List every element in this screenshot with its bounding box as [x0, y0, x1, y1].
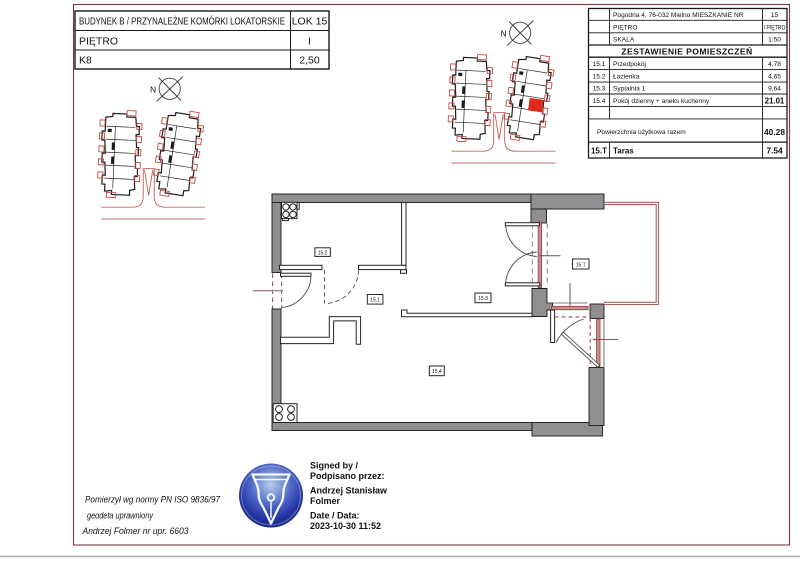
svg-text:PIĘTRO: PIĘTRO [613, 24, 638, 31]
svg-text:40.28: 40.28 [764, 127, 785, 137]
svg-text:LOK 15: LOK 15 [292, 16, 328, 28]
svg-text:K8: K8 [79, 55, 92, 67]
svg-text:Pomierzył wg normy PN ISO 983: Pomierzył wg normy PN ISO 9836/97 [85, 495, 221, 506]
svg-text:Powierzchnia użytkowa razem: Powierzchnia użytkowa razem [597, 129, 686, 136]
svg-text:I: I [308, 35, 311, 47]
svg-text:BUDYNEK B / PRZYNALEŻNE KOMÓRK: BUDYNEK B / PRZYNALEŻNE KOMÓRKI LOKATORS… [79, 15, 285, 28]
svg-text:15.4: 15.4 [593, 98, 606, 105]
svg-text:4,65: 4,65 [768, 74, 781, 81]
svg-text:15.T: 15.T [591, 146, 607, 155]
svg-text:Przedpokój: Przedpokój [613, 61, 647, 68]
svg-text:7.54: 7.54 [766, 145, 783, 155]
svg-text:15.3: 15.3 [593, 86, 606, 93]
svg-text:15.1: 15.1 [593, 61, 606, 68]
svg-text:Łazienka: Łazienka [613, 74, 640, 81]
svg-text:15: 15 [771, 12, 779, 19]
svg-text:Podpisano przez:: Podpisano przez: [310, 471, 385, 481]
svg-text:15.3: 15.3 [478, 296, 488, 302]
svg-text:Taras: Taras [613, 146, 634, 155]
svg-text:Date / Data:: Date / Data: [310, 511, 360, 521]
svg-text:PIĘTRO: PIĘTRO [79, 35, 118, 47]
svg-text:9,64: 9,64 [768, 86, 781, 93]
svg-text:4,78: 4,78 [768, 61, 781, 68]
svg-text:1:50: 1:50 [768, 37, 781, 44]
svg-text:2,50: 2,50 [299, 55, 320, 67]
svg-text:2023-10-30 11:52: 2023-10-30 11:52 [310, 521, 381, 531]
svg-text:ZESTAWIENIE POMIESZCZEŃ: ZESTAWIENIE POMIESZCZEŃ [621, 46, 752, 56]
svg-text:Andrzej Stanisław: Andrzej Stanisław [310, 485, 388, 495]
svg-text:Folmer: Folmer [310, 496, 341, 506]
svg-text:Pokój dzienny + aneks kuchenny: Pokój dzienny + aneks kuchenny [613, 98, 710, 105]
svg-text:SKALA: SKALA [613, 37, 635, 44]
svg-text:Andrzej Folmer nr upr. 6603: Andrzej Folmer nr upr. 6603 [82, 526, 189, 537]
svg-text:geodeta uprawniony: geodeta uprawniony [87, 510, 154, 521]
svg-text:21.01: 21.01 [765, 97, 785, 106]
svg-text:15.4: 15.4 [432, 369, 442, 375]
svg-text:15.2: 15.2 [593, 74, 606, 81]
svg-text:Pogodna 4, 76-032 Mielno MIESZ: Pogodna 4, 76-032 Mielno MIESZKANIE NR [613, 12, 744, 19]
svg-text:15.1: 15.1 [370, 298, 380, 304]
svg-text:15.T: 15.T [576, 262, 586, 268]
svg-text:15.2: 15.2 [318, 250, 328, 256]
svg-text:Signed by /: Signed by / [310, 461, 359, 471]
svg-text:Sypialnia 1: Sypialnia 1 [613, 86, 646, 93]
svg-text:I PIĘTRO: I PIĘTRO [764, 24, 786, 31]
